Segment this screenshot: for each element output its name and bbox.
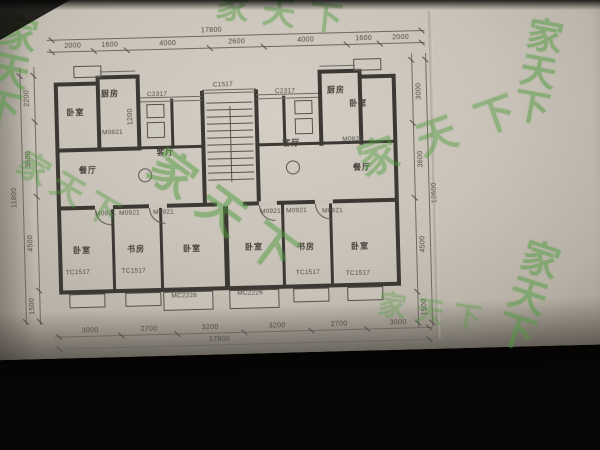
dimension-label: 3200 bbox=[269, 322, 286, 329]
dimension-label: 2200 bbox=[23, 90, 30, 107]
wall-segment bbox=[111, 209, 116, 293]
photo-top-shadow bbox=[0, 0, 600, 10]
staircase bbox=[206, 101, 254, 186]
wall-segment bbox=[223, 206, 230, 290]
room-label: 卧室 bbox=[73, 245, 91, 256]
dimension-label: 3000 bbox=[390, 319, 407, 326]
bath-fixture bbox=[294, 100, 312, 114]
window-tag: M0921 bbox=[260, 208, 281, 216]
window-tag: M0821 bbox=[342, 136, 363, 144]
window-tag: M0921 bbox=[286, 207, 307, 215]
dimension-label: 4000 bbox=[159, 40, 176, 47]
dimension-label: 1500 bbox=[421, 299, 428, 316]
bay-window bbox=[69, 293, 105, 308]
dimension-label: 17800 bbox=[209, 336, 230, 344]
window-tag: M0921 bbox=[95, 210, 116, 218]
dimension-line bbox=[55, 339, 433, 350]
window-tag: MC2226 bbox=[171, 292, 197, 300]
window-tag: MC2226 bbox=[237, 289, 263, 297]
dimension-label: 1600 bbox=[101, 41, 118, 48]
room-label: 卧室 bbox=[349, 97, 367, 108]
balcony bbox=[73, 65, 101, 78]
window-tag: C2317 bbox=[147, 91, 167, 99]
wall-segment bbox=[392, 74, 402, 286]
wall-segment bbox=[54, 81, 100, 86]
wall-segment bbox=[170, 99, 174, 149]
room-label: 厨房 bbox=[101, 88, 119, 99]
window-tag: TC1517 bbox=[66, 269, 91, 277]
dimension-label: 3200 bbox=[202, 324, 219, 331]
dimension-label: 2700 bbox=[331, 321, 348, 328]
balcony bbox=[353, 58, 381, 71]
room-label: 卧室 bbox=[66, 107, 84, 118]
wall-segment bbox=[317, 70, 323, 146]
room-label: 餐厅 bbox=[79, 165, 97, 176]
photo-scene: 卧室厨房餐厅客厅客厅餐厅厨房卧室卧室书房卧室卧室书房卧室C2317C2317C1… bbox=[0, 0, 600, 450]
dimension-label: 1500 bbox=[29, 298, 36, 315]
bay-window bbox=[293, 288, 329, 303]
bath-fixture bbox=[147, 122, 165, 138]
room-label: 卧室 bbox=[351, 240, 369, 251]
circle-marker bbox=[138, 168, 152, 182]
window-tag: TC1517 bbox=[122, 267, 147, 275]
dimension-label: 2000 bbox=[392, 34, 409, 41]
dimension-label: 1600 bbox=[355, 35, 372, 42]
room-label: 书房 bbox=[127, 243, 145, 254]
dimension-label: 4500 bbox=[419, 236, 426, 253]
bay-window bbox=[125, 292, 161, 307]
window-tag: TC1517 bbox=[296, 269, 321, 277]
dimension-label: 3000 bbox=[82, 327, 99, 334]
window-line bbox=[99, 71, 135, 73]
window-tag: M0921 bbox=[322, 207, 343, 215]
dimension-label: 2700 bbox=[141, 326, 158, 333]
wall-segment bbox=[54, 83, 64, 295]
bay-window bbox=[347, 286, 383, 301]
room-label: 客厅 bbox=[156, 147, 174, 158]
paper-sheet: 卧室厨房餐厅客厅客厅餐厅厨房卧室卧室书房卧室卧室书房卧室C2317C2317C1… bbox=[0, 0, 600, 360]
room-label: 餐厅 bbox=[353, 161, 371, 172]
window-tag: M0821 bbox=[102, 129, 123, 137]
window-line bbox=[319, 65, 355, 67]
dimension-label: 1200 bbox=[127, 108, 134, 125]
room-label: 卧室 bbox=[245, 241, 263, 252]
bath-fixture bbox=[295, 118, 313, 134]
dimension-label: 4500 bbox=[27, 235, 34, 252]
window-tag: TC1517 bbox=[346, 269, 371, 277]
window-tag: M0921 bbox=[119, 209, 140, 217]
dimension-label: 3000 bbox=[415, 83, 422, 100]
dimension-label: 17800 bbox=[201, 27, 222, 35]
window-tag: M0921 bbox=[153, 209, 174, 217]
dimension-label: 2000 bbox=[64, 42, 81, 49]
wall-segment bbox=[55, 146, 141, 152]
wall-segment bbox=[96, 74, 140, 79]
window-tag: C1517 bbox=[213, 81, 233, 89]
wall-segment bbox=[358, 74, 396, 79]
wall-segment bbox=[281, 205, 286, 289]
circle-marker bbox=[286, 160, 300, 174]
bath-fixture bbox=[146, 104, 164, 118]
dimension-label: 4000 bbox=[297, 36, 314, 43]
wall-segment bbox=[135, 74, 141, 150]
room-label: 厨房 bbox=[327, 84, 345, 95]
dimension-label: 2600 bbox=[228, 38, 245, 45]
window-line bbox=[202, 88, 256, 90]
dimension-label: 3600 bbox=[417, 151, 424, 168]
room-label: 卧室 bbox=[183, 243, 201, 254]
dimension-label: 3600 bbox=[25, 151, 32, 168]
window-tag: C2317 bbox=[275, 87, 295, 95]
room-label: 书房 bbox=[297, 241, 315, 252]
door-opening bbox=[217, 202, 243, 207]
floor-plan: 卧室厨房餐厅客厅客厅餐厅厨房卧室卧室书房卧室卧室书房卧室C2317C2317C1… bbox=[0, 0, 581, 360]
window-line bbox=[202, 91, 256, 93]
wall-segment bbox=[358, 75, 364, 145]
dimension-label: 11800 bbox=[11, 187, 19, 208]
room-label: 客厅 bbox=[282, 137, 300, 148]
